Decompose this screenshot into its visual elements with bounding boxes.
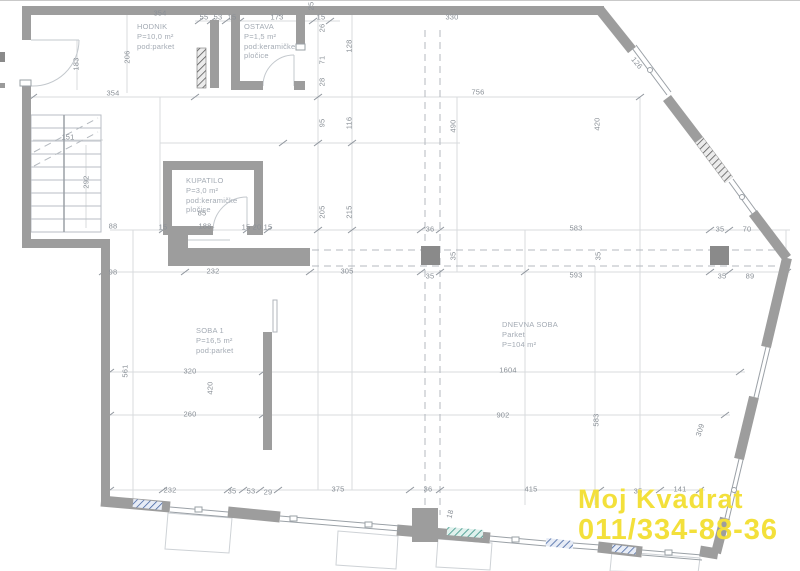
dimension-label: 232	[206, 267, 219, 276]
dimension-label: 53	[247, 487, 256, 496]
dimension-label: 26	[318, 24, 327, 33]
dimension-label: 35	[426, 272, 435, 281]
diagonal-wall-top	[600, 10, 787, 258]
room-label-line: P=16,5 m²	[196, 336, 233, 346]
room-label-line: P=1,5 m²	[244, 32, 295, 42]
dimension-label: 420	[206, 381, 215, 394]
dimension-label: 583	[592, 413, 601, 426]
dimension-label: 35	[718, 272, 727, 281]
dimension-label: 354	[106, 89, 119, 98]
dimension-label: 116	[345, 117, 354, 130]
dimension-label: 260	[183, 410, 196, 419]
dimension-label: 55	[200, 13, 209, 22]
dimension-label: 320	[183, 367, 196, 376]
radiator-hatches	[133, 48, 636, 551]
room-label-line: P=104 m²	[502, 340, 558, 350]
axis-lines	[22, 13, 790, 505]
dimension-label: 89	[746, 272, 755, 281]
dimension-label: 215	[345, 205, 354, 218]
dimension-label: 15	[242, 223, 251, 232]
room-label-line: SOBA 1	[196, 326, 233, 336]
dimension-label: 95	[318, 119, 327, 128]
dimension-label: 354	[153, 9, 166, 18]
room-label-line: P=10,0 m²	[137, 32, 174, 42]
dimension-label: 29	[264, 488, 273, 497]
wall-hatch-diagonal	[699, 140, 729, 180]
room-label-line: pod:parket	[137, 42, 174, 52]
dimension-label: 375	[331, 485, 344, 494]
dimension-label: 561	[121, 364, 130, 377]
dimension-label: 205	[318, 205, 327, 218]
room-label-line: pod:keramičke	[186, 196, 237, 206]
dimension-label: 70	[743, 225, 752, 234]
dimension-label: 36	[426, 225, 435, 234]
dimension-label: 415	[524, 485, 537, 494]
dimension-label: 173	[270, 13, 283, 22]
room-label-line: pod:parket	[196, 346, 233, 356]
watermark-phone: 011/334-88-36	[578, 516, 778, 545]
room-label: SOBA 1P=16,5 m²pod:parket	[196, 326, 233, 355]
watermark-brand: Moj Kvadrat	[578, 486, 778, 513]
dimension-label: 756	[471, 88, 484, 97]
dimension-label: 15	[228, 13, 237, 22]
dimension-label: 1604	[499, 366, 517, 375]
dimension-label: 35	[716, 225, 725, 234]
dimension-label: 15	[317, 13, 326, 22]
dimension-label: 20	[253, 223, 262, 232]
dimension-label: 28	[318, 78, 327, 87]
room-label-line: pločice	[244, 51, 295, 61]
dimension-label: 183	[72, 57, 81, 70]
room-label: OSTAVAP=1,5 m²pod:keramičkepločice	[244, 22, 295, 61]
dimension-label: 35	[594, 252, 603, 261]
dimension-ticks	[29, 10, 791, 493]
dimension-label: 902	[496, 411, 509, 420]
dimension-label: 188	[198, 222, 211, 231]
dimension-label: 53	[214, 13, 223, 22]
room-label-line: Parket	[502, 330, 558, 340]
room-label-line: OSTAVA	[244, 22, 295, 32]
dimension-label: 36	[424, 485, 433, 494]
dimension-label: 232	[163, 486, 176, 495]
dimension-label: 15	[264, 223, 273, 232]
room-label-line: pod:keramičke	[244, 42, 295, 52]
dimension-label: 15	[159, 223, 168, 232]
dimension-label: 420	[593, 117, 602, 130]
dimension-label: 98	[109, 268, 118, 277]
outer-walls	[22, 6, 604, 505]
dimension-label: 151	[61, 133, 74, 142]
dimension-label: 88	[109, 222, 118, 231]
room-label: HODNIKP=10,0 m²pod:parket	[137, 22, 174, 51]
watermark: Moj Kvadrat 011/334-88-36	[578, 486, 778, 545]
dimension-label: 128	[345, 39, 354, 52]
room-label-line: HODNIK	[137, 22, 174, 32]
dimension-label: 85	[198, 209, 207, 218]
dimension-label: 25	[307, 2, 316, 11]
columns	[421, 246, 729, 265]
dimension-label: 71	[318, 56, 327, 65]
dimension-label: 35	[449, 252, 458, 261]
room-label-line: pločice	[186, 205, 237, 215]
dimension-label: 305	[340, 267, 353, 276]
floor-plan-canvas: HODNIKP=10,0 m²pod:parketOSTAVAP=1,5 m²p…	[0, 0, 800, 571]
dimension-label: 330	[445, 13, 458, 22]
dimension-label: 292	[82, 175, 91, 188]
room-label: KUPATILOP=3,0 m²pod:keramičkepločice	[186, 176, 237, 215]
dimension-label: 593	[569, 271, 582, 280]
dimension-label: 490	[449, 119, 458, 132]
dimension-label: 583	[569, 224, 582, 233]
room-label: DNEVNA SOBAParketP=104 m²	[502, 320, 558, 349]
room-label-line: KUPATILO	[186, 176, 237, 186]
room-label-line: P=3,0 m²	[186, 186, 237, 196]
dimension-label: 35	[228, 487, 237, 496]
room-label-line: DNEVNA SOBA	[502, 320, 558, 330]
dimension-label: 206	[123, 50, 132, 63]
